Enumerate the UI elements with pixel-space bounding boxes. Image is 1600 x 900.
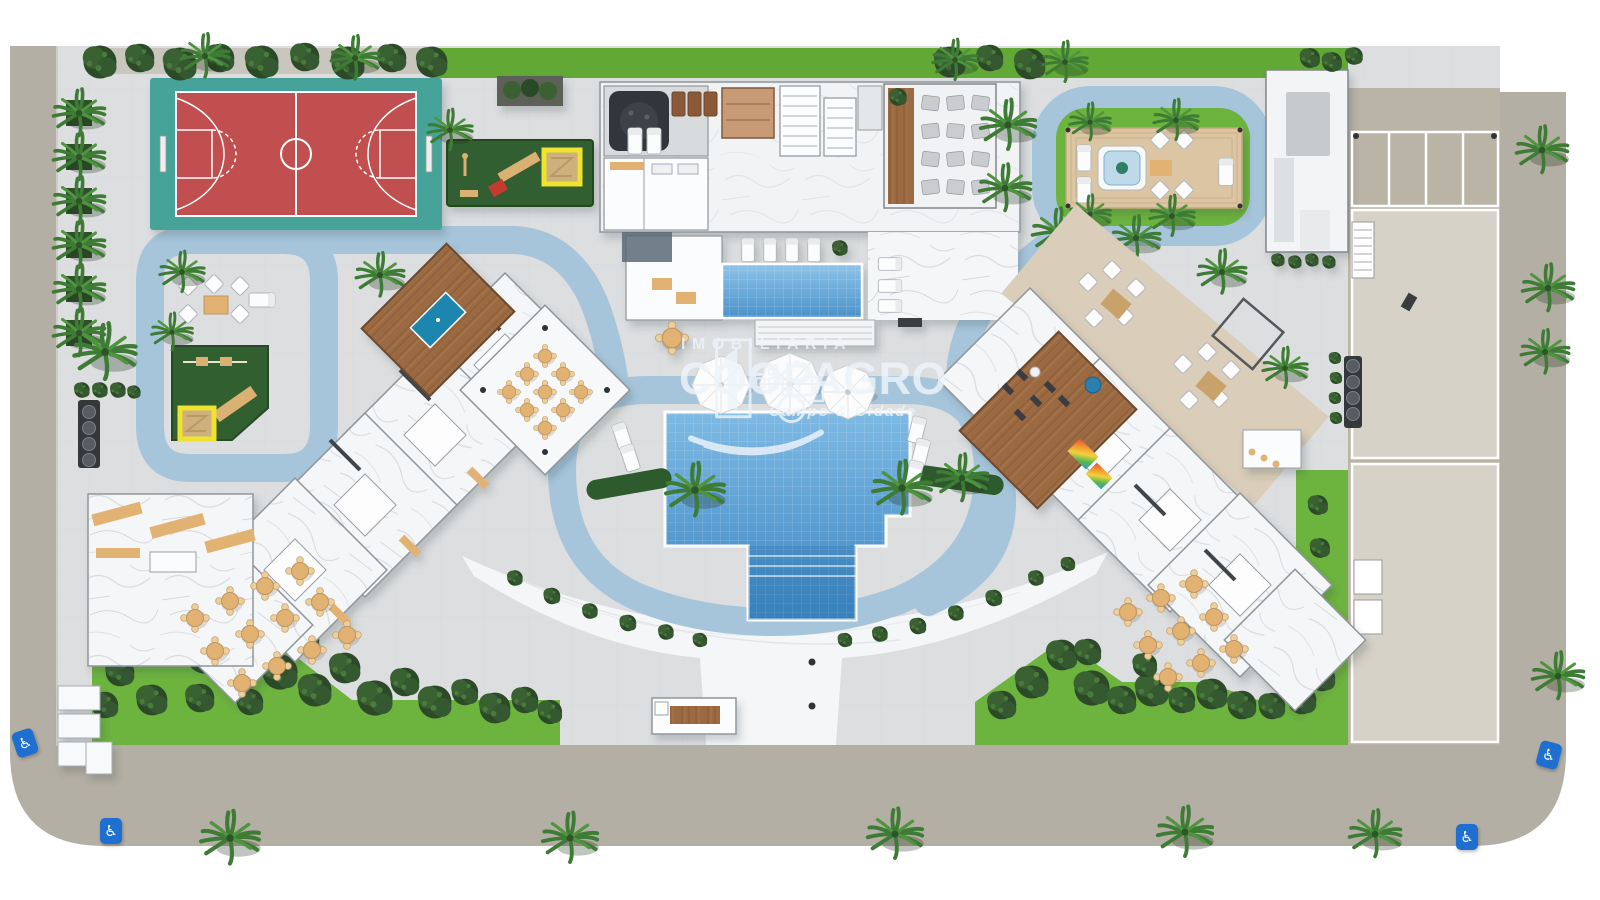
site-plan-rendering: IMOBILIÁRIA COOPAGRO Campo & Cidade ♿ ♿ …	[0, 0, 1600, 900]
wheelchair-icon: ♿	[16, 734, 33, 752]
basketball-court	[150, 78, 442, 230]
sauna-room	[722, 88, 774, 138]
hoop-backboard-left	[160, 136, 166, 172]
wheelchair-icon: ♿	[1460, 830, 1473, 845]
wheelchair-icon: ♿	[1541, 746, 1558, 764]
accessibility-marker-bottom-left: ♿	[100, 818, 122, 844]
accessibility-marker-bottom-right: ♿	[1456, 824, 1478, 850]
clubhouse-top	[600, 82, 1020, 355]
top-border	[100, 48, 1348, 78]
service-building	[1266, 70, 1348, 269]
entrance-structure	[652, 698, 736, 734]
wheelchair-icon: ♿	[104, 824, 117, 839]
site-plan-canvas	[0, 0, 1600, 900]
